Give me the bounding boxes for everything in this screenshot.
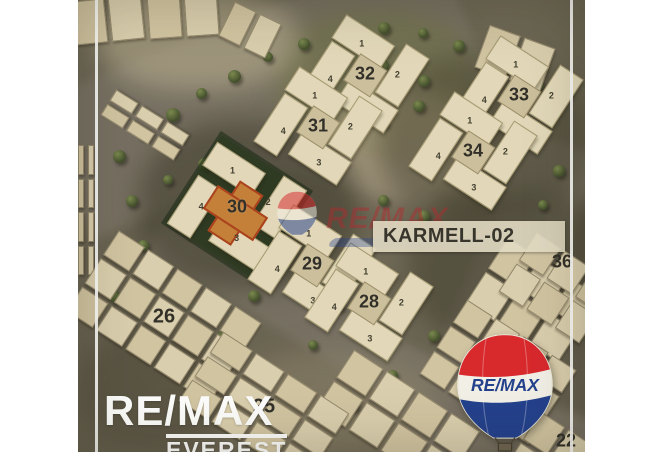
tree-icon bbox=[428, 330, 440, 342]
listing-image: 1234321234311234331234341234301234291234… bbox=[0, 0, 668, 452]
building-row bbox=[78, 0, 145, 46]
building-unit bbox=[78, 179, 84, 209]
tree-icon bbox=[308, 340, 318, 350]
everest-wordmark: EVEREST bbox=[166, 434, 287, 452]
unit-number: 1 bbox=[359, 38, 364, 48]
building-unit bbox=[78, 212, 84, 242]
building-number: 33 bbox=[509, 85, 529, 106]
building-unit bbox=[88, 179, 94, 209]
building-unit bbox=[78, 145, 84, 175]
unit-number: 1 bbox=[467, 115, 472, 125]
photo-seam-line-left bbox=[95, 0, 98, 452]
remax-balloon-logo: RE/MAX bbox=[450, 334, 560, 452]
building-number: 26 bbox=[153, 306, 175, 329]
unit-number: 2 bbox=[399, 298, 404, 308]
remax-wordmark: RE/MAX bbox=[104, 390, 287, 432]
tree-icon bbox=[298, 38, 310, 50]
building-number: 30 bbox=[227, 197, 247, 218]
tree-icon bbox=[553, 165, 565, 177]
balloon-red-band bbox=[450, 334, 559, 377]
master-plan-photo: 1234321234311234331234341234301234291234… bbox=[78, 0, 585, 452]
tree-icon bbox=[413, 100, 425, 112]
unit-number: 1 bbox=[363, 266, 368, 276]
building-unit bbox=[108, 0, 145, 42]
building-number: 32 bbox=[355, 64, 375, 85]
unit-number: 2 bbox=[549, 91, 554, 101]
project-label: KARMELL-02 bbox=[373, 221, 565, 252]
building-unit bbox=[183, 0, 219, 37]
unit-number: 4 bbox=[199, 201, 204, 211]
building-unit bbox=[88, 212, 94, 242]
unit-number: 3 bbox=[234, 233, 239, 243]
unit-number: 3 bbox=[367, 333, 372, 343]
photo-seam-line-right bbox=[570, 0, 573, 452]
building-number: 31 bbox=[308, 116, 328, 137]
unit-number: 2 bbox=[266, 197, 271, 207]
unit-number: 1 bbox=[306, 228, 311, 238]
building-number: 34 bbox=[463, 141, 483, 162]
unit-number: 3 bbox=[316, 157, 321, 167]
unit-number: 1 bbox=[312, 90, 317, 100]
unit-number: 4 bbox=[275, 264, 280, 274]
unit-number: 4 bbox=[436, 151, 441, 161]
unit-number: 4 bbox=[332, 302, 337, 312]
unit-number: 2 bbox=[395, 70, 400, 80]
building-number: 36 bbox=[552, 252, 572, 273]
tree-icon bbox=[163, 175, 173, 185]
tree-icon bbox=[126, 195, 138, 207]
unit-number: 2 bbox=[348, 122, 353, 132]
unit-number: 2 bbox=[503, 147, 508, 157]
unit-number: 3 bbox=[471, 182, 476, 192]
tree-icon bbox=[166, 108, 180, 122]
balloon-basket bbox=[498, 443, 511, 451]
building-unit bbox=[78, 0, 108, 46]
building-number: 29 bbox=[302, 254, 322, 275]
remax-everest-logo: RE/MAX EVEREST bbox=[104, 390, 287, 452]
unit-number: 1 bbox=[230, 166, 235, 176]
tree-icon bbox=[113, 150, 126, 163]
building-row bbox=[78, 145, 94, 275]
tree-icon bbox=[228, 70, 241, 83]
tree-icon bbox=[418, 28, 428, 38]
tree-icon bbox=[196, 88, 207, 99]
building-unit bbox=[146, 0, 182, 39]
tree-icon bbox=[453, 40, 465, 52]
tree-icon bbox=[378, 195, 389, 206]
building-row bbox=[146, 0, 219, 39]
building-number: 28 bbox=[359, 292, 379, 313]
building-unit bbox=[78, 246, 84, 276]
unit-number: 4 bbox=[281, 126, 286, 136]
tree-icon bbox=[248, 290, 260, 302]
tree-icon bbox=[538, 200, 548, 210]
unit-number: 1 bbox=[513, 59, 518, 69]
balloon-brand-text: RE/MAX bbox=[471, 375, 540, 395]
building-unit bbox=[88, 145, 94, 175]
